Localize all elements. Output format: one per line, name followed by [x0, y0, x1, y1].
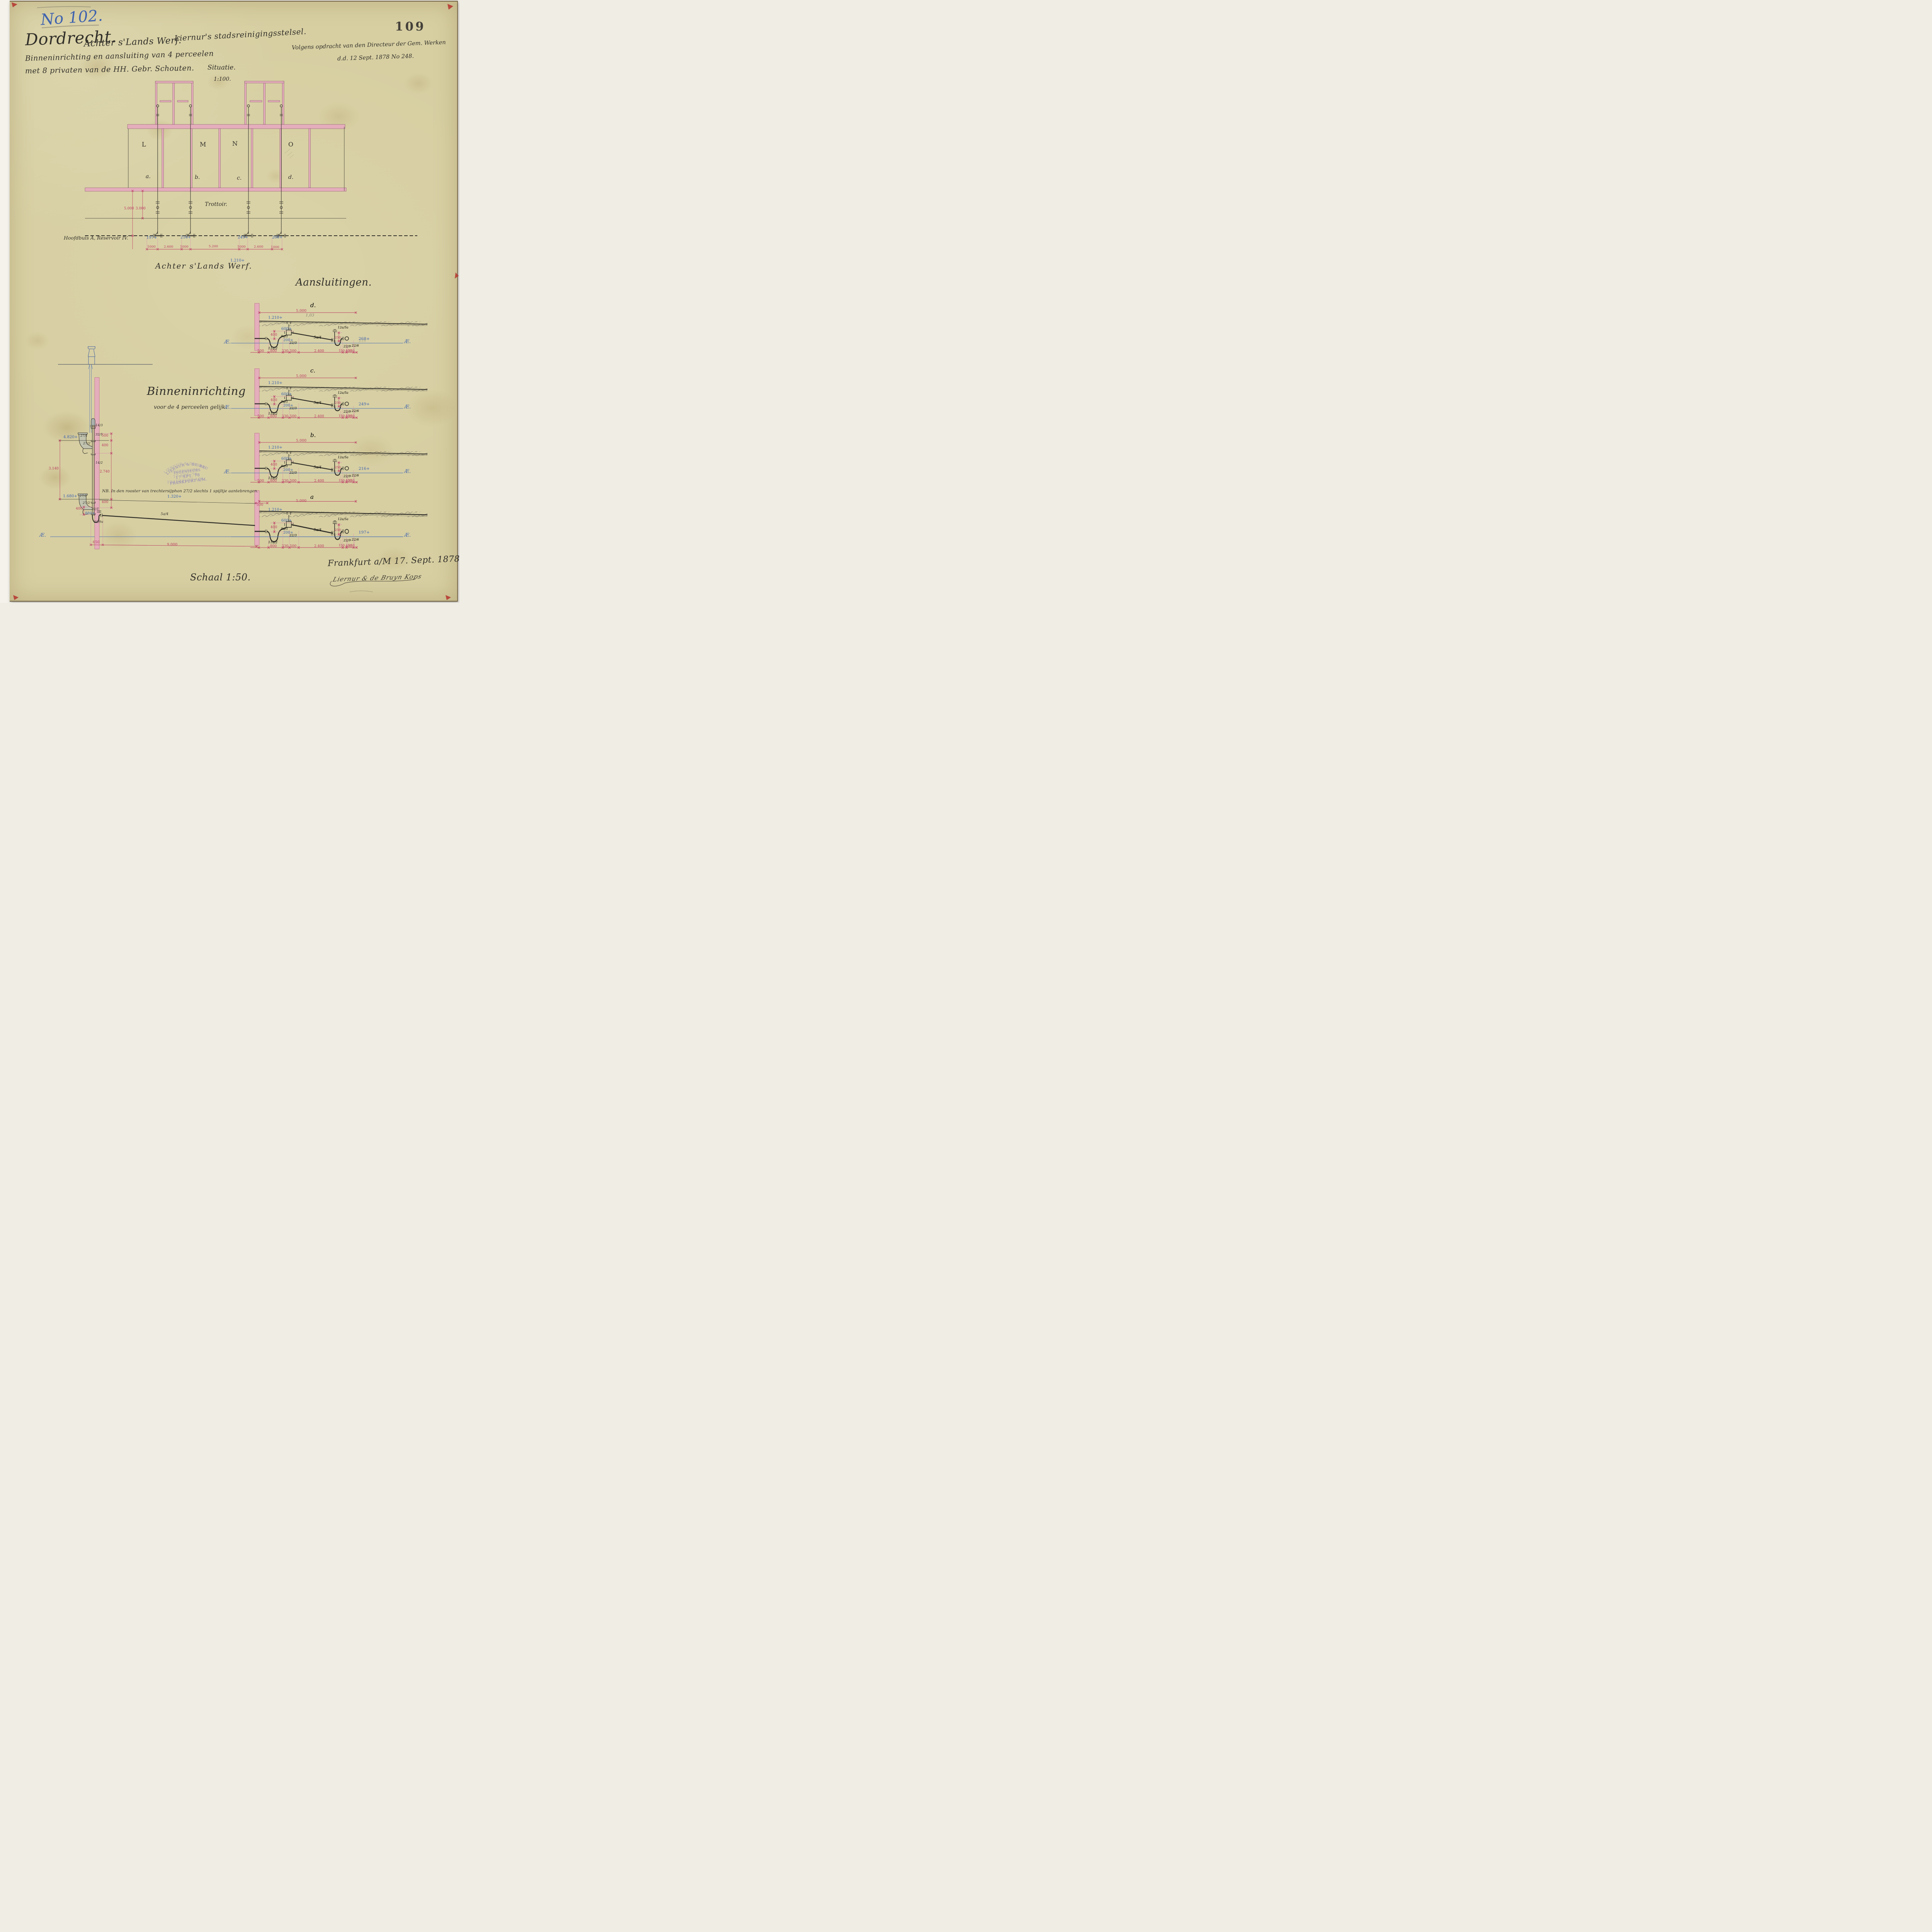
section-c-linework [231, 369, 428, 419]
title-subtitle1: Binneninrichting en aansluiting van 4 pe… [25, 50, 214, 63]
dim-top: 5.000 [296, 374, 306, 378]
part-22-6: 22/6 [352, 344, 359, 348]
parcel-c: c. [237, 175, 241, 181]
parcel-a: a. [146, 174, 151, 179]
dim-b1: 2.600 [164, 245, 173, 249]
drawing-number: No 102. [40, 8, 103, 27]
dim-bottom-2400: 2.400 [314, 544, 324, 548]
dim-400: 400 [270, 398, 277, 402]
part-12a5a: 12a/5a [338, 326, 349, 329]
dim-250: 250 [335, 528, 341, 532]
company-stamp: LIERNUR & DE BRUYN-KOPS INGENIEURS 17 SP… [163, 457, 212, 488]
title-subtitle2: met 8 privaten van de HH. Gebr. Schouten… [25, 65, 194, 75]
ap-right: Æ. [404, 404, 411, 410]
dim-9000: 9.000 [167, 543, 177, 547]
signature: Liernur & de Bruyn Kops [332, 573, 422, 583]
room-M: M [200, 141, 206, 148]
part-22-6: 22/6 [352, 409, 359, 413]
part-5a4-long: 5a/4 [161, 513, 168, 516]
part-5a4: 5a/4 [314, 528, 321, 532]
level-197: 197+ [146, 236, 157, 240]
dim-bottom-800: 800 [270, 544, 277, 548]
dim-400: 400 [270, 526, 277, 529]
part-22-3: 22/3 [289, 341, 297, 345]
level-ground: 1.210+ [268, 316, 282, 320]
part-22-6: 22/6 [352, 538, 359, 542]
commission-line1: Volgens opdracht van den Directeur der G… [292, 40, 446, 51]
trottoir-label: Trottoir. [205, 202, 227, 207]
part-22-9: 22/9 [344, 539, 351, 543]
part-32-1b: 32/1 [92, 508, 99, 511]
part-27-2a: 27/2 [83, 442, 90, 446]
dim-150a: 150 [338, 544, 345, 548]
part-27-1a: 27/1 [80, 434, 88, 438]
dim-bottom-2400: 2.400 [314, 349, 324, 353]
dim-bottom-500b: 500 [290, 544, 296, 548]
dim-3140: 3.140 [49, 467, 59, 471]
part-22-6: 22/6 [352, 474, 359, 478]
dim-150a: 150 [338, 414, 345, 418]
section-label: b. [310, 432, 316, 439]
dim-150a: 150 [338, 349, 345, 353]
street-name: Achter s'Lands Werf. [155, 262, 252, 270]
part-5a4: 5a/4 [314, 466, 321, 469]
dim-bottom-330: 330 [282, 479, 288, 483]
dim-top: 5.000 [296, 499, 306, 503]
dim-bottom-500: 500 [257, 349, 264, 353]
title-system: Liernur's stadsreinigingsstelsel. [174, 27, 307, 42]
ap-left: Æ. [224, 469, 231, 475]
dim-bottom-2400: 2.400 [314, 415, 324, 418]
archive-number: 109 [395, 21, 426, 33]
level-end: 216+ [359, 466, 370, 471]
drawing-linework [0, 1, 459, 603]
level-end: 197+ [359, 530, 370, 535]
dim-b4: 1000 [237, 245, 246, 249]
part-20-9a: 20/9a [94, 520, 103, 524]
room-N: N [232, 141, 238, 147]
dim-400: 400 [270, 463, 277, 467]
part-27-1b: 27/1 [80, 495, 87, 498]
level-ground: 1.210+ [268, 446, 282, 450]
dim-bottom-500b: 500 [290, 415, 296, 418]
dim-150a: 150 [338, 479, 345, 483]
paper-sheet: No 102. 109 Dordrecht. Achter s'Lands We… [10, 1, 458, 602]
level-gully: 600+ [281, 392, 292, 396]
dim-bottom-500b: 500 [290, 479, 296, 483]
part-5a4: 5a/4 [314, 336, 321, 340]
parcel-d: d. [288, 175, 293, 180]
level-gully: 600+ [281, 327, 292, 331]
dim-650: 650 [93, 541, 100, 544]
ap-right: Æ. [404, 339, 411, 345]
dim-b0: 1000 [147, 245, 156, 249]
dim-left-500: 500 [257, 503, 263, 507]
level-1320: 1.320+ [167, 495, 182, 499]
dim-bottom-800: 800 [270, 415, 277, 418]
part-22-3: 22/3 [289, 534, 297, 537]
dim-3000-v: 3.000 [136, 207, 146, 211]
situatie-plan-linework [85, 81, 417, 250]
level-ground: 1.210+ [268, 381, 282, 385]
scanned-drawing: No 102. 109 Dordrecht. Achter s'Lands We… [0, 0, 459, 603]
title-location: Achter s'Lands Werf. [84, 36, 182, 49]
dim-top: 5.000 [296, 439, 306, 443]
room-O: O [288, 141, 293, 148]
level-ground: 1.210+ [268, 508, 282, 512]
dim-2740: 2.740 [100, 470, 110, 474]
dim-bottom-330: 330 [282, 415, 288, 418]
dim-bottom-500: 500 [257, 479, 264, 483]
schaal-label: Schaal 1:50. [190, 573, 251, 582]
level-1680: 1.680+ [63, 495, 77, 498]
binneninrichting-linework [58, 347, 258, 549]
section-a-linework [50, 491, 428, 549]
situatie-scale: 1:100. [214, 77, 231, 82]
part-12a5a: 12a/5a [338, 456, 349, 459]
dim-b5: 2.600 [254, 245, 263, 249]
level-gully: 600+ [281, 457, 292, 461]
ap-left: Æ. [224, 339, 231, 345]
dim-bottom-330: 330 [282, 544, 288, 548]
dim-400b: 400 [102, 501, 108, 504]
part-14-2: 14/2 [95, 461, 103, 465]
dim-top: 5.000 [296, 309, 306, 313]
section-b-linework [231, 433, 428, 483]
part-22-9: 22/9 [344, 410, 351, 414]
dim-b2: 1000 [180, 245, 189, 249]
dim-250: 250 [335, 466, 341, 469]
hoofdbuis-label: Hoofdbuis A, Reservoir IV. [64, 236, 128, 241]
room-L: L [142, 141, 146, 148]
part-5a4: 5a/4 [314, 401, 321, 405]
dim-b3: 5.200 [209, 245, 218, 248]
dim-bottom-800: 800 [270, 349, 277, 353]
dim-bottom-400: 400 [345, 349, 352, 353]
commission-line2: d.d. 12 Sept. 1878 No 248. [337, 54, 414, 62]
parcel-b: b. [195, 175, 200, 180]
ap-left: Æ. [39, 532, 46, 538]
dim-bottom-400: 400 [345, 544, 352, 548]
section-label: d. [310, 302, 316, 309]
level-gully: 600+ [281, 519, 292, 523]
dim-400: 400 [270, 333, 277, 337]
dim-5000-v: 5.000 [124, 207, 134, 211]
dim-250: 250 [335, 401, 341, 405]
part-22-3: 22/3 [289, 406, 297, 410]
dim-bottom-500: 500 [257, 415, 264, 418]
part-11a2: 11a/2 [268, 541, 277, 544]
dim-bottom-400: 400 [345, 415, 352, 418]
section-label: c. [310, 367, 315, 374]
dim-250: 250 [335, 336, 341, 340]
binnen-subtitle: voor de 4 perceelen gelijk. [154, 405, 227, 410]
dim-bottom-500b: 500 [290, 349, 296, 353]
part-22-9: 22/9 [344, 345, 351, 349]
dim-bottom-330: 330 [282, 349, 288, 353]
dim-400a: 400 [102, 444, 108, 447]
level-216: 216+ [180, 236, 191, 240]
part-12a5a: 12a/5a [338, 391, 349, 395]
dim-bottom-800: 800 [270, 479, 277, 483]
section-d-linework [231, 303, 428, 354]
level-end: 249+ [359, 402, 370, 406]
section-label: a [310, 493, 314, 500]
part-32-1: 32/1 [95, 433, 103, 437]
part-27-2b: 27/2 [83, 502, 90, 505]
dim-400c: 400 [76, 507, 82, 511]
part-12a5a: 12a/5a [338, 517, 349, 521]
part-14-3: 14/3 [95, 424, 103, 427]
ap-right: Æ. [404, 532, 411, 538]
ap-right: Æ. [404, 469, 411, 474]
level-4820: 4.820+ [63, 435, 78, 439]
dim-bottom-2400: 2.400 [314, 479, 324, 483]
situatie-label: Situatie. [207, 65, 236, 71]
dim-b6: 1000 [271, 246, 279, 249]
dim-bottom-400: 400 [345, 479, 352, 483]
part-22-3: 22/3 [289, 471, 297, 475]
part-22-9: 22/9 [344, 474, 351, 478]
level-880: 880+ [85, 512, 95, 515]
binnen-title: Binneninrichting [147, 386, 246, 397]
level-268: 268+ [272, 236, 282, 240]
pencil-note-d: 1,03 [306, 314, 314, 318]
nb-note: NB. In den rooster van trechtersijphon 2… [102, 489, 259, 493]
level-end: 268+ [359, 337, 370, 341]
level-249: 249+ [238, 236, 248, 240]
place-date: Frankfurt a/M 17. Sept. 1878. [328, 555, 459, 568]
aansluitingen-title: Aansluitingen. [296, 277, 372, 287]
